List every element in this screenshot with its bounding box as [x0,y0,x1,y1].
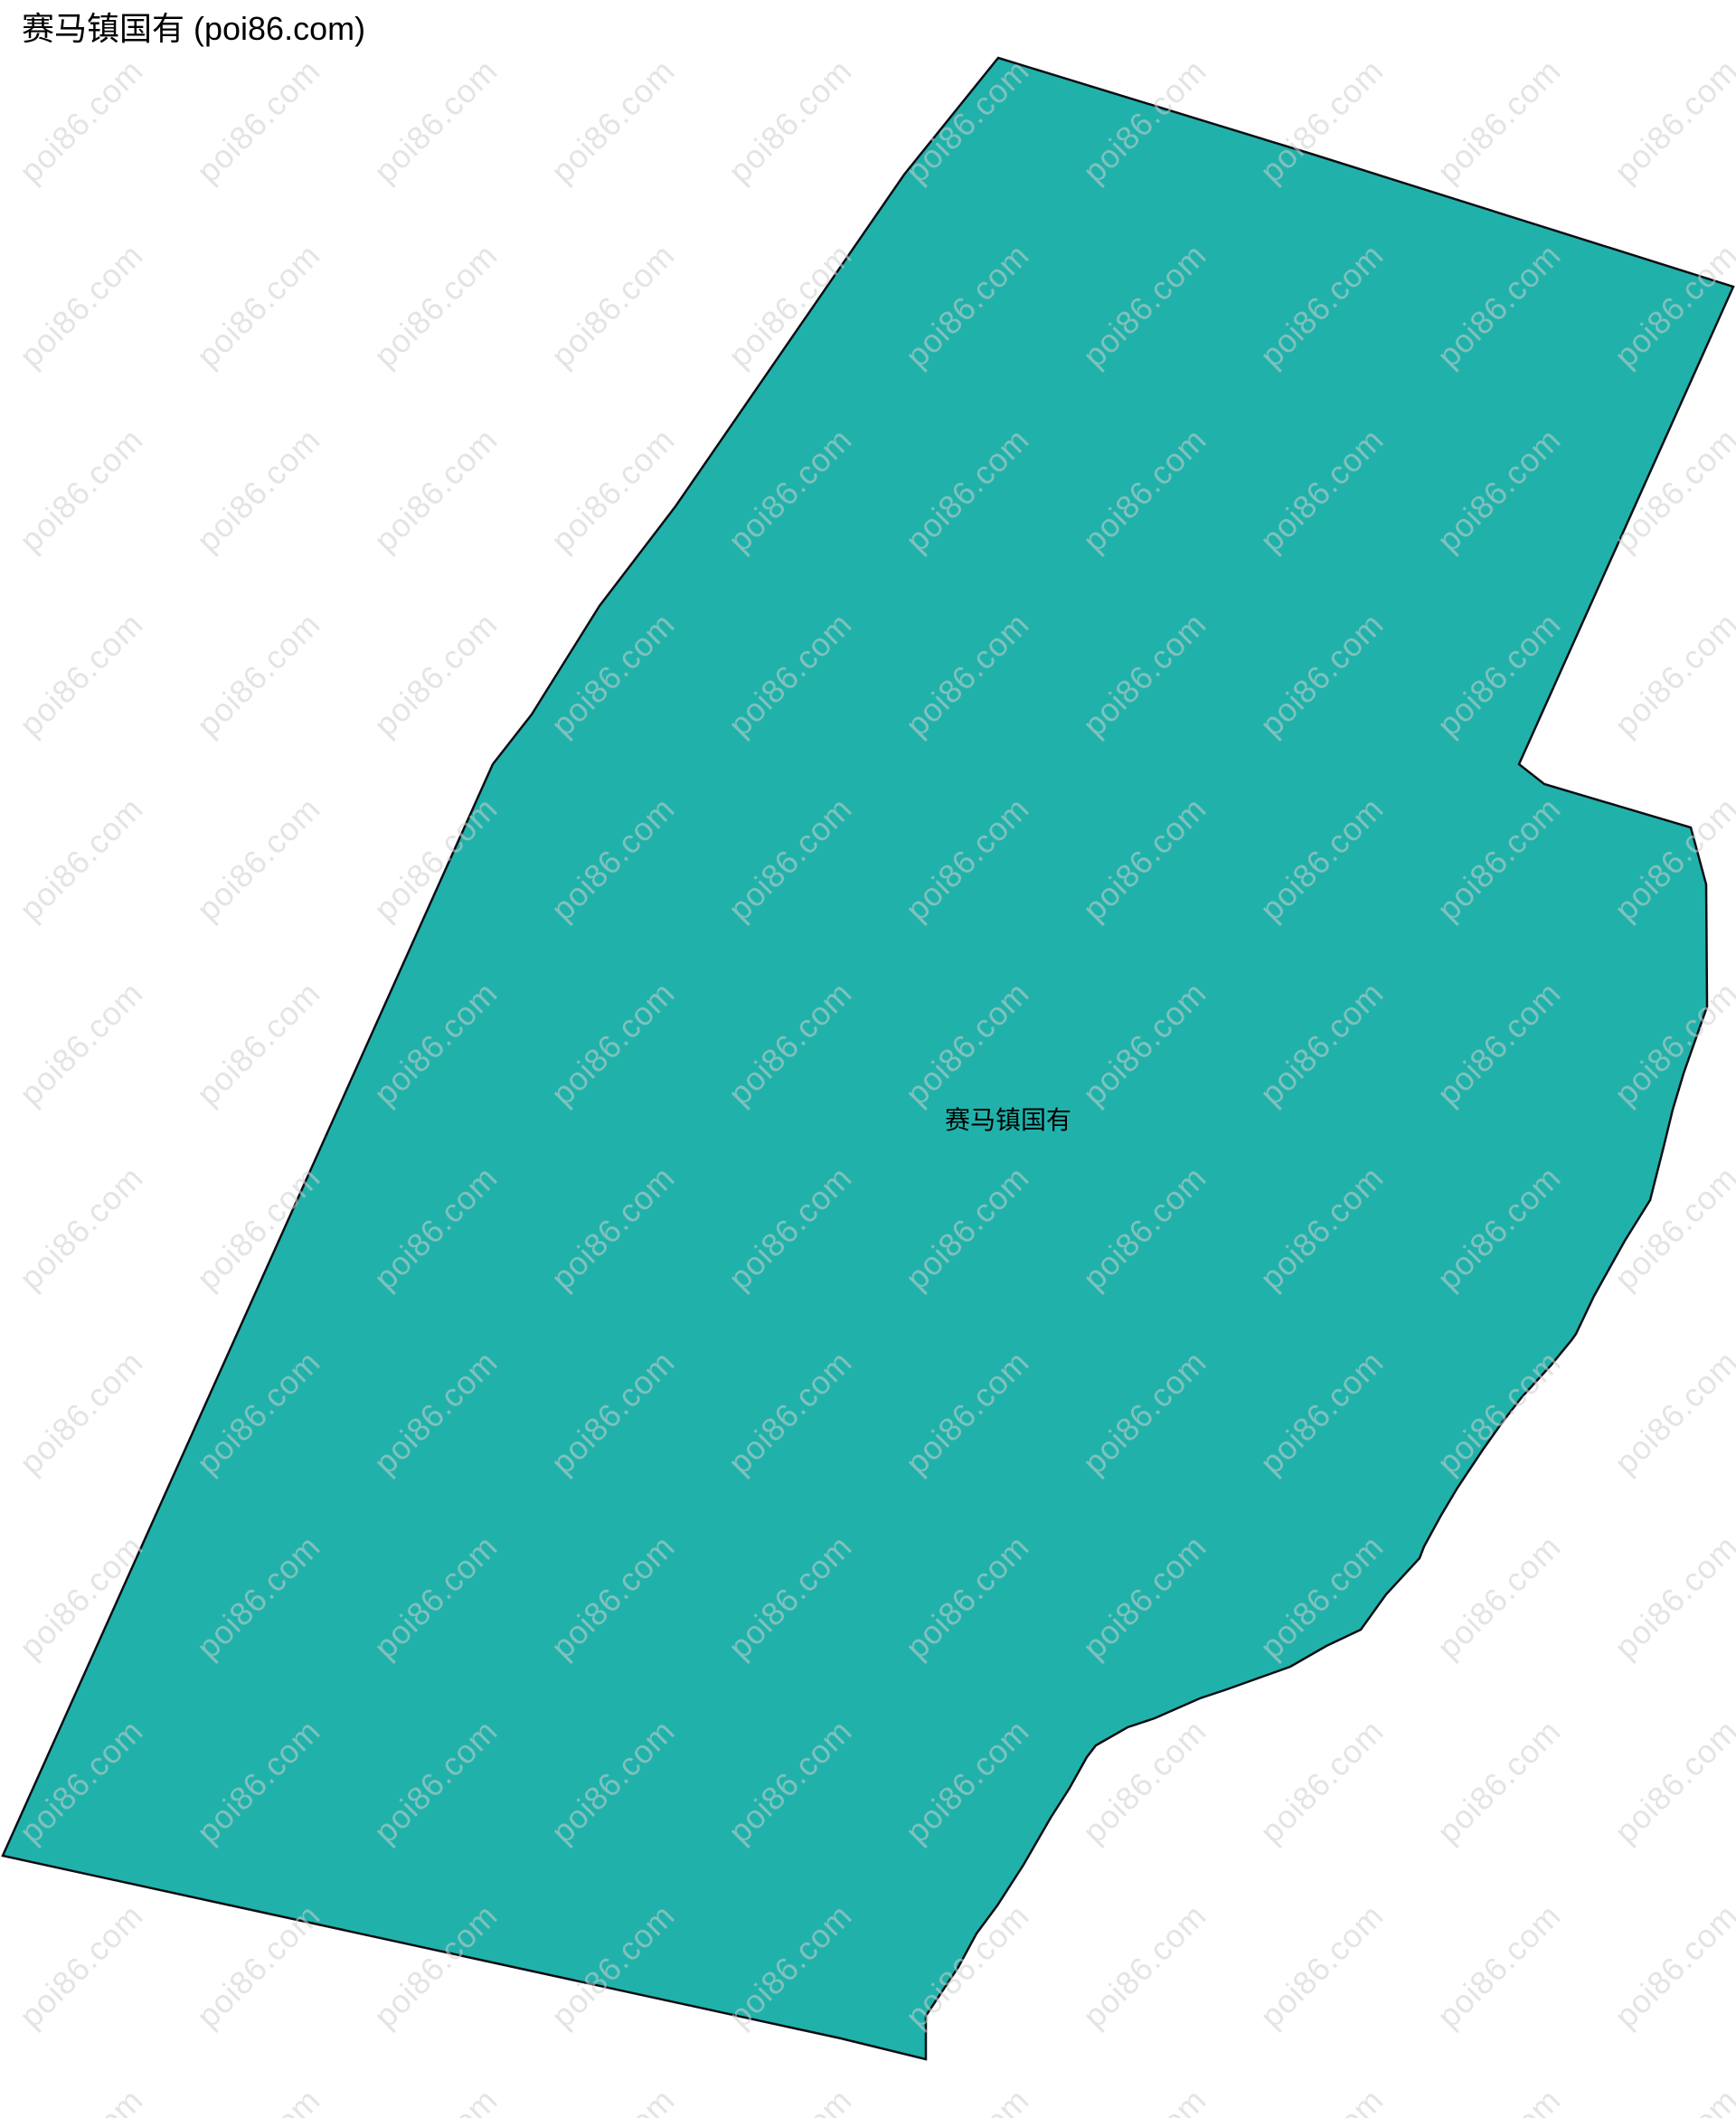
map-canvas [0,0,1736,2118]
page-title: 赛马镇国有 (poi86.com) [22,9,365,48]
region-polygon[interactable] [3,58,1733,2059]
